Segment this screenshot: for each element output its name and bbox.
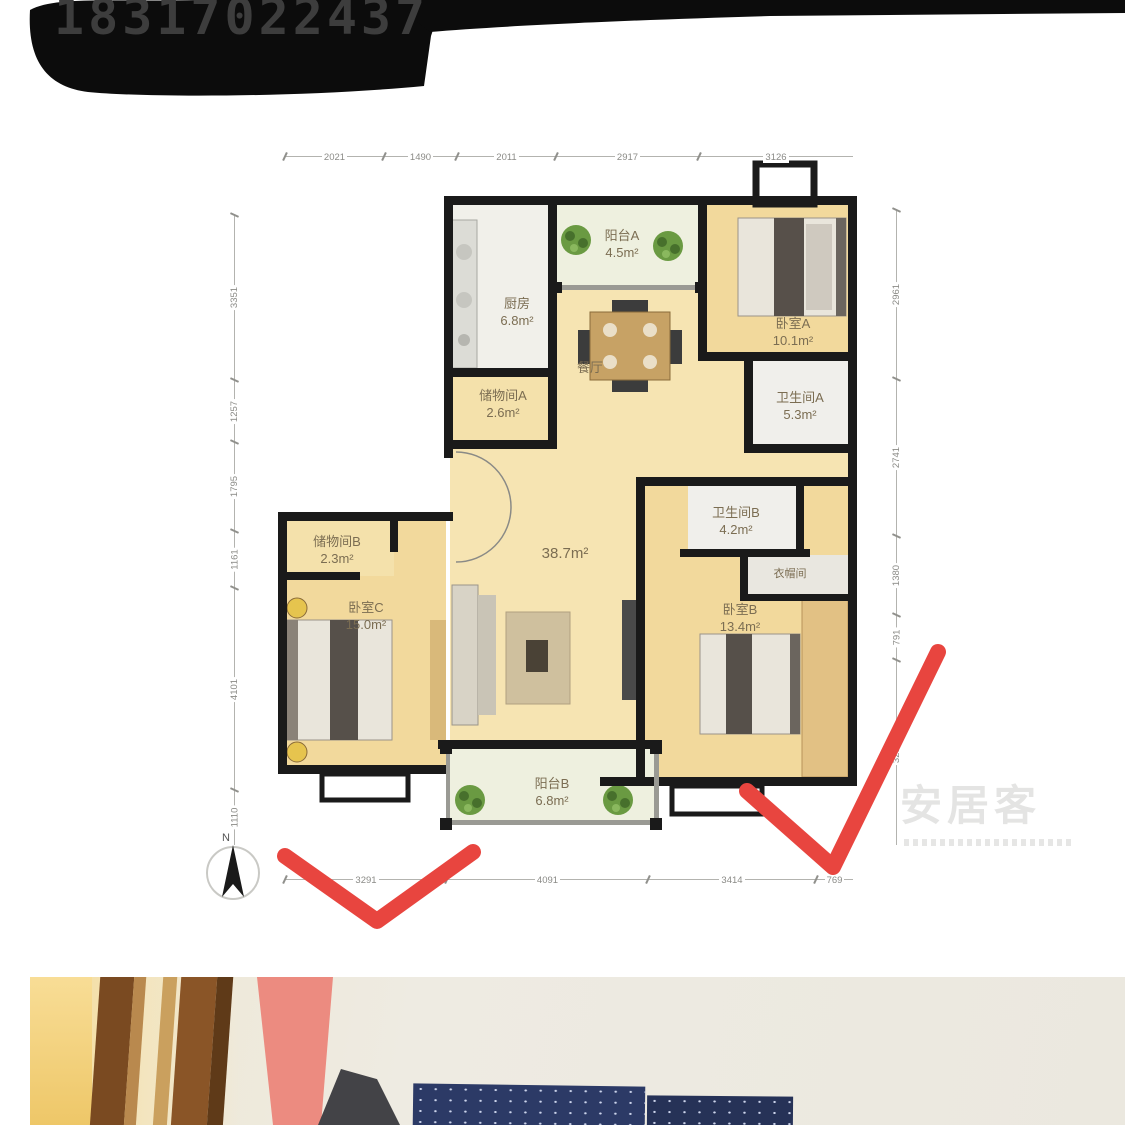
room-name: 卫生间B (712, 505, 760, 522)
dimension-segment: 4091 (447, 873, 648, 887)
dimension-segment: 1380 (890, 536, 904, 615)
room-area: 13.4m² (720, 619, 760, 636)
room-area: 10.1m² (773, 333, 813, 350)
dimension-segment: 791 (890, 615, 904, 660)
dimension-segment: 1257 (228, 380, 242, 442)
watermark: 安居客 (900, 772, 1100, 846)
room-name: 卧室C (348, 600, 383, 617)
room-area: 4.5m² (605, 245, 638, 262)
watermark-text: 安居客 (900, 772, 1100, 833)
phone-number: 18317022437 (54, 0, 429, 46)
dining-table (578, 300, 682, 392)
room-area: 2.3m² (320, 551, 353, 568)
dimension-segment: 3414 (648, 873, 816, 887)
dimension-segment: 2011 (457, 150, 556, 164)
room-area: 6.8m² (535, 793, 568, 810)
room-area: 6.8m² (500, 313, 533, 330)
watermark-subtext-line (904, 839, 1072, 846)
dimension-segment: 1795 (228, 442, 242, 531)
photo-bed-headboard (413, 1083, 646, 1125)
room-name: 储物间A (479, 388, 527, 405)
room-area: 38.7m² (542, 544, 589, 564)
room-label-bedroom-b: 卧室B 13.4m² (720, 602, 760, 636)
room-label-storage-b: 储物间B 2.3m² (313, 534, 361, 568)
room-label-kitchen: 厨房 6.8m² (500, 296, 533, 330)
dimension-segment: 1490 (384, 150, 457, 164)
photo-pink-cloth (233, 977, 333, 1125)
room-name: 卧室B (723, 602, 758, 619)
room-area: 2.6m² (486, 405, 519, 422)
room-label-bathroom-a: 卫生间A 5.3m² (776, 390, 824, 424)
room-name: 厨房 (504, 296, 530, 313)
dimension-segment: 2961 (890, 210, 904, 379)
dimensions-bottom: 3291 4091 3414 769 (285, 873, 853, 887)
room-label-bedroom-c: 卧室C 15.0m² (346, 600, 386, 634)
room-label-storage-a: 储物间A 2.6m² (479, 388, 527, 422)
room-name: 衣帽间 (774, 567, 807, 581)
dimension-segment: 1161 (228, 531, 242, 588)
room-label-balcony-a: 阳台A 4.5m² (605, 228, 640, 262)
dimensions-left: 3351 1257 1795 1161 4101 1110 (228, 215, 242, 845)
room-label-dining: 餐厅 (577, 360, 603, 377)
north-compass-icon (207, 845, 259, 899)
room-label-balcony-b: 阳台B 6.8m² (535, 776, 570, 810)
room-name: 卫生间A (776, 390, 824, 407)
room-label-bathroom-b: 卫生间B 4.2m² (712, 505, 760, 539)
dimension-segment: 1110 (228, 790, 242, 845)
dimension-segment: 2917 (556, 150, 699, 164)
photo-dark-cloth (318, 1069, 400, 1125)
room-area: 15.0m² (346, 617, 386, 634)
dimension-segment: 3291 (285, 873, 447, 887)
room-photo (30, 977, 1125, 1125)
room-name: 阳台A (605, 228, 640, 245)
bed-a (738, 218, 846, 316)
room-area: 4.2m² (719, 522, 752, 539)
room-label-living-area: 38.7m² (542, 544, 589, 564)
room-label-closet: 衣帽间 (774, 567, 807, 581)
room-label-bedroom-a: 卧室A 10.1m² (773, 316, 813, 350)
dimension-segment: 769 (816, 873, 853, 887)
dimension-segment: 4101 (228, 588, 242, 790)
room-name: 餐厅 (577, 360, 603, 377)
dimension-segment: 3351 (228, 215, 242, 380)
dimensions-right: 2961 2741 1380 791 3231 (890, 210, 904, 845)
photo-door-panel (30, 977, 92, 1125)
dimension-segment: 2741 (890, 379, 904, 536)
compass-north-label: N (222, 832, 230, 844)
room-name: 储物间B (313, 534, 361, 551)
photo-bed-headboard (647, 1095, 793, 1125)
dimension-segment: 3126 (699, 150, 853, 164)
room-name: 卧室A (776, 316, 811, 333)
dimensions-top: 2021 1490 2011 2917 3126 (285, 150, 853, 164)
room-name: 阳台B (535, 776, 570, 793)
dimension-segment: 2021 (285, 150, 384, 164)
room-area: 5.3m² (783, 407, 816, 424)
